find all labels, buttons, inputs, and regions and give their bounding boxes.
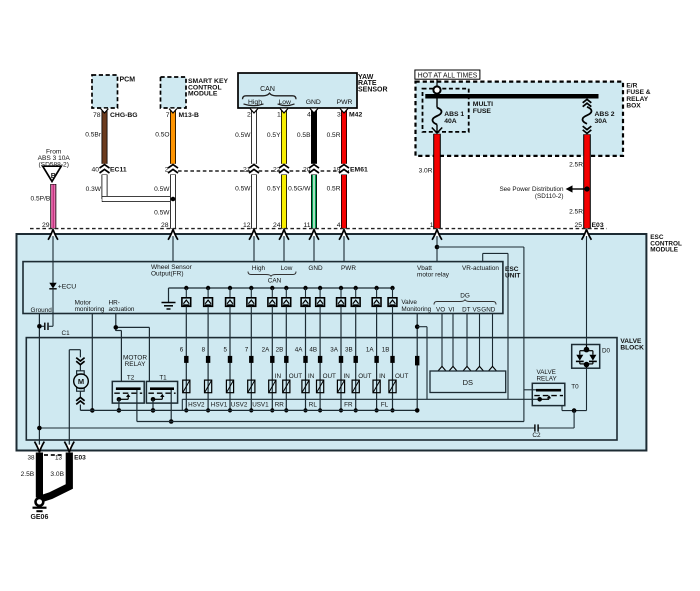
svg-text:(SD110-2): (SD110-2): [535, 193, 564, 200]
svg-text:IN: IN: [275, 373, 282, 380]
svg-text:OUT: OUT: [289, 373, 302, 380]
svg-text:E03: E03: [74, 454, 86, 461]
svg-text:0.5G/W: 0.5G/W: [288, 186, 311, 193]
svg-text:monitoring: monitoring: [75, 306, 105, 313]
svg-text:DS: DS: [463, 378, 473, 387]
svg-text:MULTI: MULTI: [473, 101, 493, 108]
svg-text:0.5W: 0.5W: [154, 210, 170, 217]
svg-text:0.5Br: 0.5Br: [85, 132, 102, 139]
svg-text:BLOCK: BLOCK: [620, 345, 644, 352]
svg-text:0.5W: 0.5W: [235, 132, 251, 139]
svg-text:IN: IN: [344, 373, 351, 380]
svg-text:2B: 2B: [276, 347, 284, 354]
svg-text:2: 2: [165, 167, 169, 174]
svg-text:USV1: USV1: [252, 401, 269, 408]
svg-text:D0: D0: [602, 347, 611, 354]
svg-text:Low: Low: [281, 265, 293, 272]
svg-text:RELAY: RELAY: [537, 376, 558, 383]
svg-text:19: 19: [333, 167, 341, 174]
svg-text:0.5Y: 0.5Y: [267, 186, 281, 193]
svg-text:T1: T1: [159, 374, 167, 381]
svg-text:3.0R: 3.0R: [419, 168, 433, 175]
svg-text:40A: 40A: [444, 118, 457, 125]
svg-text:GND: GND: [308, 265, 323, 272]
svg-text:RR: RR: [275, 401, 285, 408]
svg-text:2A: 2A: [262, 347, 271, 354]
svg-text:11: 11: [303, 222, 310, 229]
svg-text:HSV1: HSV1: [211, 401, 228, 408]
svg-text:OUT: OUT: [395, 373, 408, 380]
svg-text:CAN: CAN: [268, 278, 282, 285]
svg-text:4: 4: [307, 112, 311, 119]
svg-text:2: 2: [247, 112, 251, 119]
svg-text:actuation: actuation: [109, 306, 135, 313]
svg-text:28: 28: [161, 222, 169, 229]
svg-text:IN: IN: [379, 373, 386, 380]
svg-text:0.5O: 0.5O: [155, 132, 169, 139]
svg-text:IN: IN: [308, 373, 315, 380]
svg-text:2.5R: 2.5R: [569, 209, 583, 216]
svg-text:+ECU: +ECU: [58, 284, 76, 291]
svg-text:1A: 1A: [366, 347, 375, 354]
svg-text:1: 1: [277, 112, 281, 119]
svg-text:0.5Y: 0.5Y: [267, 132, 281, 139]
svg-text:PWR: PWR: [337, 99, 353, 106]
svg-text:3: 3: [337, 112, 341, 119]
svg-text:Ground: Ground: [31, 307, 53, 314]
svg-text:UNIT: UNIT: [505, 273, 520, 280]
svg-text:Valve: Valve: [401, 299, 417, 306]
svg-text:HSV2: HSV2: [188, 401, 205, 408]
svg-text:PWR: PWR: [341, 265, 356, 272]
svg-text:20: 20: [303, 167, 311, 174]
svg-text:0.3W: 0.3W: [86, 186, 102, 193]
svg-text:0.5P/B: 0.5P/B: [31, 196, 51, 203]
svg-text:RL: RL: [309, 401, 318, 408]
svg-text:EM61: EM61: [350, 167, 368, 174]
svg-text:FUSE: FUSE: [473, 108, 492, 115]
svg-text:1B: 1B: [382, 347, 390, 354]
svg-text:30A: 30A: [595, 118, 608, 125]
svg-text:C2: C2: [532, 432, 541, 439]
svg-text:4: 4: [337, 222, 341, 229]
svg-text:GND: GND: [306, 99, 321, 106]
svg-text:3.0B: 3.0B: [50, 471, 64, 478]
svg-text:6: 6: [180, 347, 184, 354]
svg-text:MODULE: MODULE: [650, 246, 678, 253]
svg-text:FL: FL: [381, 401, 389, 408]
svg-text:2.5B: 2.5B: [21, 471, 35, 478]
svg-text:VS: VS: [472, 306, 480, 313]
svg-text:40: 40: [91, 167, 99, 174]
svg-text:22: 22: [273, 167, 281, 174]
svg-text:T0: T0: [571, 384, 579, 391]
svg-text:4B: 4B: [309, 347, 317, 354]
svg-text:CHG-BG: CHG-BG: [110, 112, 138, 119]
svg-text:B: B: [51, 171, 56, 180]
svg-text:8: 8: [202, 347, 206, 354]
svg-text:3B: 3B: [345, 347, 353, 354]
svg-text:0.5B: 0.5B: [297, 132, 311, 139]
svg-text:12: 12: [243, 222, 251, 229]
svg-text:M: M: [78, 377, 84, 386]
svg-text:SENSOR: SENSOR: [358, 86, 388, 93]
svg-text:4A: 4A: [295, 347, 304, 354]
svg-text:FR: FR: [344, 401, 353, 408]
svg-text:38: 38: [27, 454, 35, 461]
svg-text:M42: M42: [349, 112, 362, 119]
svg-text:OUT: OUT: [358, 373, 371, 380]
svg-text:USV2: USV2: [231, 401, 248, 408]
svg-text:Monitoring: Monitoring: [401, 306, 431, 313]
svg-text:VI: VI: [448, 306, 454, 313]
svg-text:5: 5: [223, 347, 227, 354]
svg-text:21: 21: [243, 167, 251, 174]
svg-text:BOX: BOX: [626, 103, 641, 110]
svg-text:MODULE: MODULE: [188, 91, 218, 98]
svg-text:25: 25: [574, 222, 582, 229]
svg-text:24: 24: [273, 222, 281, 229]
svg-text:0.5R: 0.5R: [327, 186, 341, 193]
svg-text:0.5R: 0.5R: [327, 132, 341, 139]
svg-text:2.5R: 2.5R: [569, 162, 583, 169]
svg-text:C1: C1: [62, 330, 71, 337]
svg-text:VR-actuation: VR-actuation: [462, 265, 499, 272]
svg-text:RELAY: RELAY: [125, 361, 146, 368]
svg-text:29: 29: [42, 222, 50, 229]
svg-text:3A: 3A: [330, 347, 339, 354]
svg-text:PCM: PCM: [120, 77, 136, 84]
svg-text:VO: VO: [436, 306, 445, 313]
svg-text:GE06: GE06: [30, 514, 48, 521]
svg-text:7: 7: [166, 112, 170, 119]
svg-text:7: 7: [245, 347, 249, 354]
svg-text:78: 78: [93, 112, 101, 119]
svg-text:HOT AT ALL TIMES: HOT AT ALL TIMES: [418, 72, 478, 79]
svg-text:M13-B: M13-B: [179, 112, 199, 119]
svg-text:Output(FR): Output(FR): [151, 270, 184, 277]
svg-text:OUT: OUT: [323, 373, 336, 380]
svg-text:motor relay: motor relay: [417, 271, 450, 278]
svg-text:0.5W: 0.5W: [154, 186, 170, 193]
svg-text:0.5W: 0.5W: [235, 186, 251, 193]
svg-text:DT: DT: [462, 306, 471, 313]
svg-text:1: 1: [430, 222, 434, 229]
svg-text:T2: T2: [127, 374, 135, 381]
svg-text:EC11: EC11: [110, 167, 127, 174]
svg-text:GND: GND: [481, 306, 495, 313]
svg-text:E03: E03: [592, 222, 604, 229]
svg-text:CAN: CAN: [260, 86, 275, 93]
svg-text:High: High: [252, 265, 266, 272]
svg-text:DG: DG: [460, 292, 470, 299]
